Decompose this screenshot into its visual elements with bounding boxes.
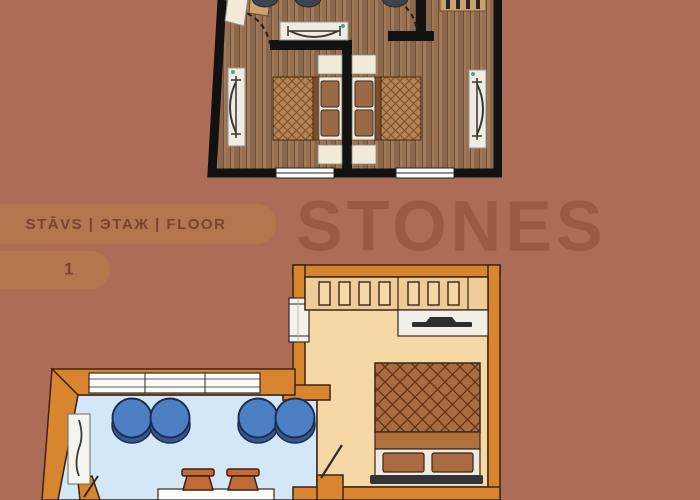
shelf-icon — [440, 0, 486, 11]
floor-label-text: STĀVS | ЭТАЖ | FLOOR — [26, 216, 227, 233]
bed-icon — [273, 77, 342, 140]
radiator-icon — [68, 414, 90, 484]
radiator-icon — [469, 70, 486, 148]
floor-label-pill: STĀVS | ЭТАЖ | FLOOR — [0, 204, 276, 244]
radiator-icon — [280, 22, 348, 40]
window-icon — [89, 373, 260, 393]
upper-floor-plan — [202, 0, 502, 185]
watermark-text: STONES — [296, 185, 607, 267]
tv-stand-icon — [398, 310, 488, 336]
wardrobe-icon — [305, 277, 488, 310]
radiator-icon — [228, 68, 245, 146]
bed-icon — [352, 77, 421, 140]
screenshot-root: STĀVS | ЭТАЖ | FLOOR 1 STONES — [0, 0, 700, 500]
lower-floor-plan — [40, 262, 505, 500]
bed-icon — [370, 363, 483, 484]
